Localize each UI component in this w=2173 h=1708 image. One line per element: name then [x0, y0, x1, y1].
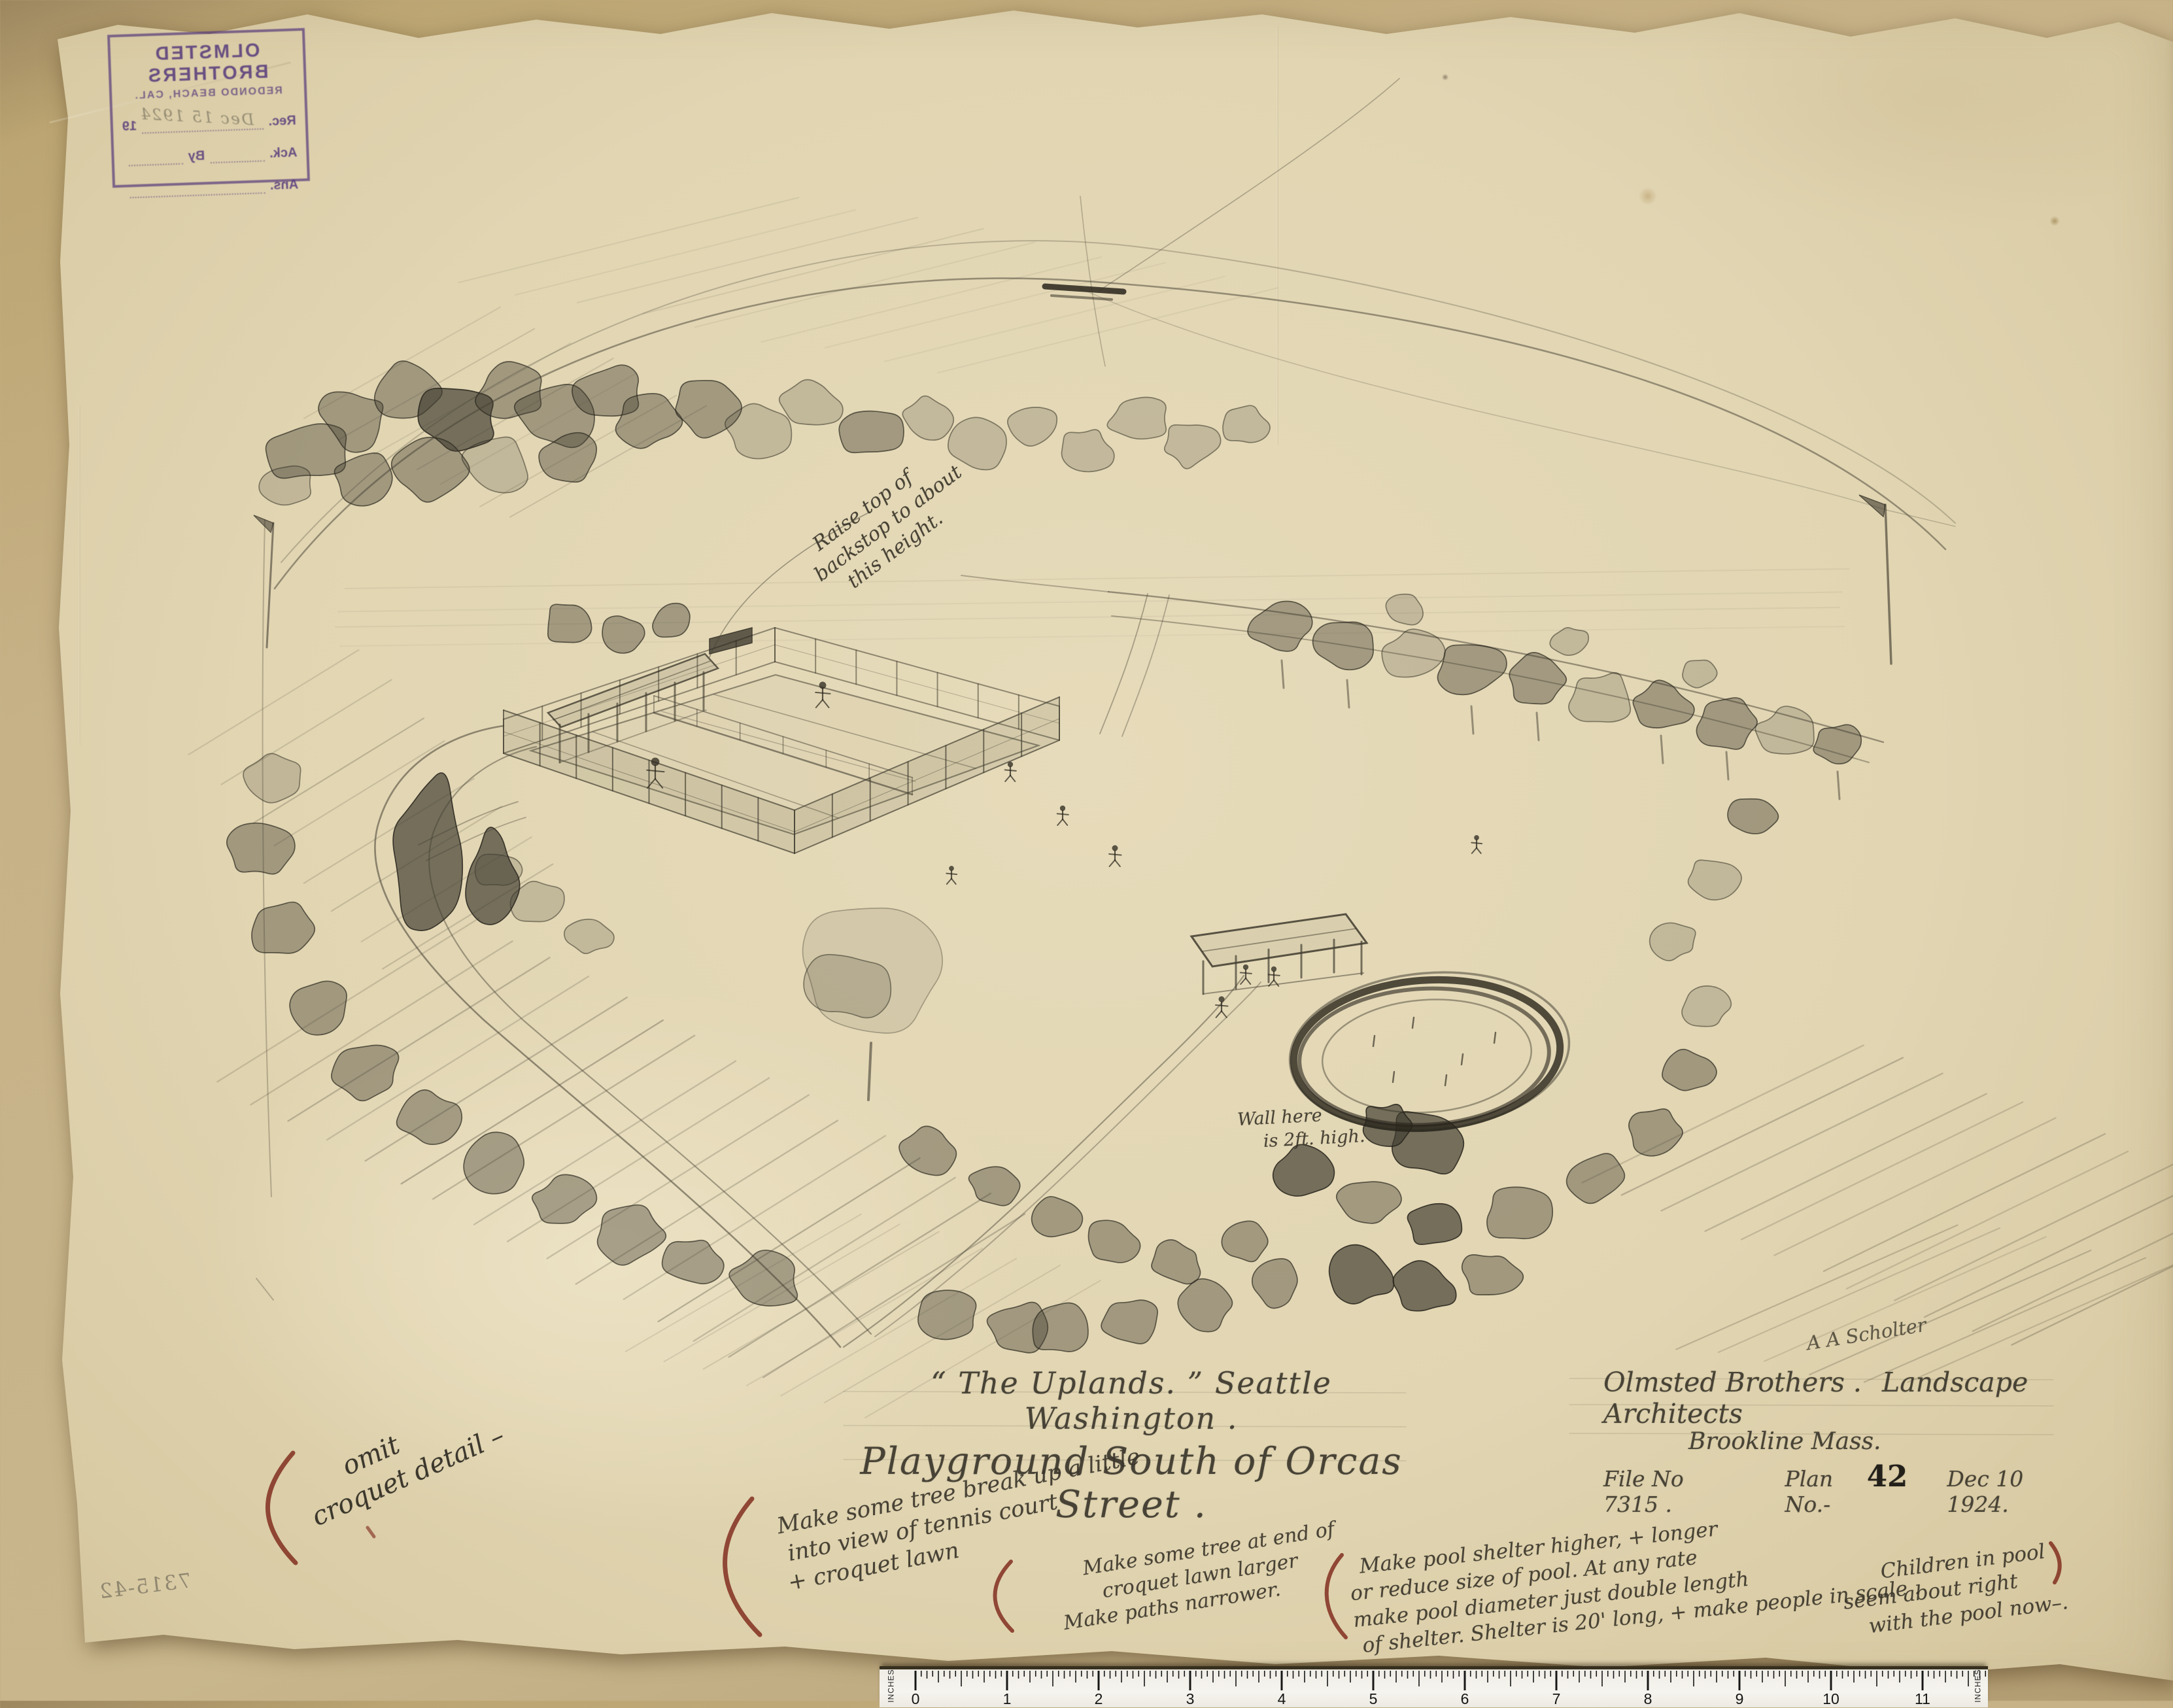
stamp-rec-label: Rec. [268, 113, 296, 129]
scanned-drawing: OLMSTED BROTHERS REDONDO BEACH, CAL. Rec… [0, 0, 2173, 1701]
note-wall-height: Wall here is 2ft. high. [1237, 1102, 1365, 1154]
stamp-rec-year: 19 [122, 119, 137, 135]
stamp-rec-row: Rec. 19 Dec 15 1924 [122, 113, 297, 134]
ruler-inch-number: 4 [1278, 1690, 1286, 1708]
stamp-ack-label: Ack. [269, 145, 298, 161]
credit-address: Brookline Mass. [1688, 1428, 2061, 1455]
ruler-inch-number: 0 [912, 1690, 920, 1708]
credit-block: Olmsted Brothers . Landscape Architects … [1603, 1367, 2061, 1517]
ruler-tick-marks [880, 1669, 1988, 1707]
stamp-dotted-leader [129, 159, 183, 166]
ruler-inch-number: 5 [1369, 1690, 1378, 1708]
ruler-inch-number: 6 [1461, 1690, 1469, 1708]
stamp-by-label: By [188, 148, 205, 164]
ruler-inch-number: 8 [1644, 1690, 1652, 1708]
ruler-inch-number: 2 [1095, 1690, 1103, 1708]
title-line-1: “ The Uplands. ” Seattle Washington . [844, 1365, 1419, 1436]
ruler-inch-number: 3 [1186, 1690, 1195, 1708]
stamp-org-line: OLMSTED BROTHERS [120, 39, 295, 88]
trees-and-shrubs [227, 361, 1861, 1353]
ruler-unit-label: INCHES [887, 1669, 896, 1702]
tennis-courts [504, 628, 1059, 853]
pool-shelter [1191, 914, 1367, 994]
credit-plan-number: 42 [1867, 1459, 1908, 1494]
credit-firm: Olmsted Brothers . [1603, 1367, 1862, 1398]
ruler-inch-number: 1 [1003, 1690, 1012, 1708]
ruler-unit-label: INCHES [1973, 1669, 1982, 1702]
ruler-inch-number: 7 [1552, 1690, 1561, 1708]
credit-line-1: Olmsted Brothers . Landscape Architects [1603, 1367, 2061, 1429]
ruler-inch-number: 9 [1736, 1690, 1744, 1708]
received-stamp: OLMSTED BROTHERS REDONDO BEACH, CAL. Rec… [107, 28, 310, 188]
stamp-location-line: REDONDO BEACH, CAL. [121, 84, 295, 102]
stamp-ack-row: Ack. By [123, 145, 298, 166]
ruler: INCHES INCHES 01234567891011 [880, 1666, 1988, 1707]
stamp-pencil-date: Dec 15 1924 [139, 105, 254, 129]
ruler-inch-number: 10 [1822, 1690, 1839, 1708]
stamp-ans-label: Ans. [269, 177, 298, 193]
credit-date: Dec 10 1924. [1947, 1466, 2061, 1517]
ruler-inch-number: 11 [1915, 1690, 1930, 1708]
credit-file-number: File No 7315 . [1603, 1466, 1726, 1517]
stamp-dotted-leader [210, 156, 264, 163]
